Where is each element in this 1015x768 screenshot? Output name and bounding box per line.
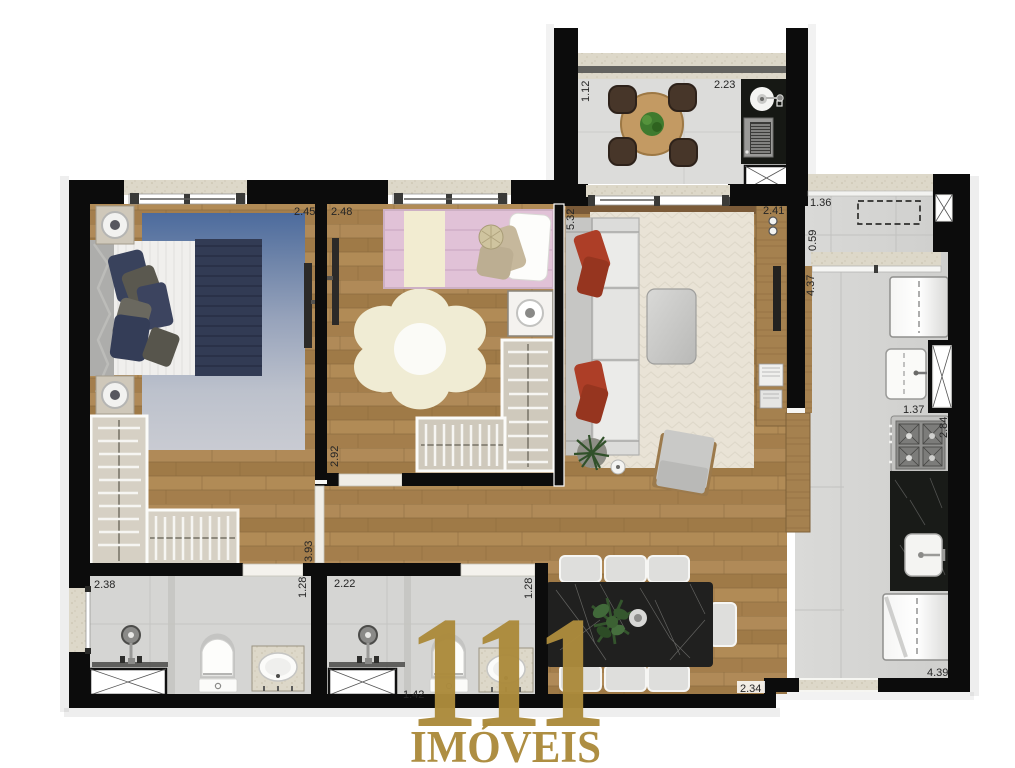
svg-text:2.22: 2.22 bbox=[334, 578, 355, 590]
svg-text:4.37: 4.37 bbox=[805, 275, 817, 296]
svg-text:2.92: 2.92 bbox=[329, 446, 341, 467]
svg-text:1.12: 1.12 bbox=[580, 81, 592, 102]
svg-text:2.45: 2.45 bbox=[294, 206, 315, 218]
svg-text:4.39: 4.39 bbox=[927, 667, 948, 679]
svg-text:1.28: 1.28 bbox=[297, 577, 309, 598]
svg-text:IMÓVEIS: IMÓVEIS bbox=[410, 722, 601, 768]
svg-text:1.37: 1.37 bbox=[903, 404, 924, 416]
svg-text:2.84: 2.84 bbox=[938, 417, 950, 438]
svg-text:2.34: 2.34 bbox=[740, 683, 761, 695]
svg-text:2.23: 2.23 bbox=[714, 79, 735, 91]
svg-text:2.41: 2.41 bbox=[763, 205, 784, 217]
svg-text:3.93: 3.93 bbox=[303, 541, 315, 562]
svg-text:2.48: 2.48 bbox=[331, 206, 352, 218]
svg-text:5.32: 5.32 bbox=[565, 209, 577, 230]
svg-text:1.36: 1.36 bbox=[810, 197, 831, 209]
svg-text:2.38: 2.38 bbox=[94, 579, 115, 591]
svg-text:0.59: 0.59 bbox=[807, 230, 819, 251]
